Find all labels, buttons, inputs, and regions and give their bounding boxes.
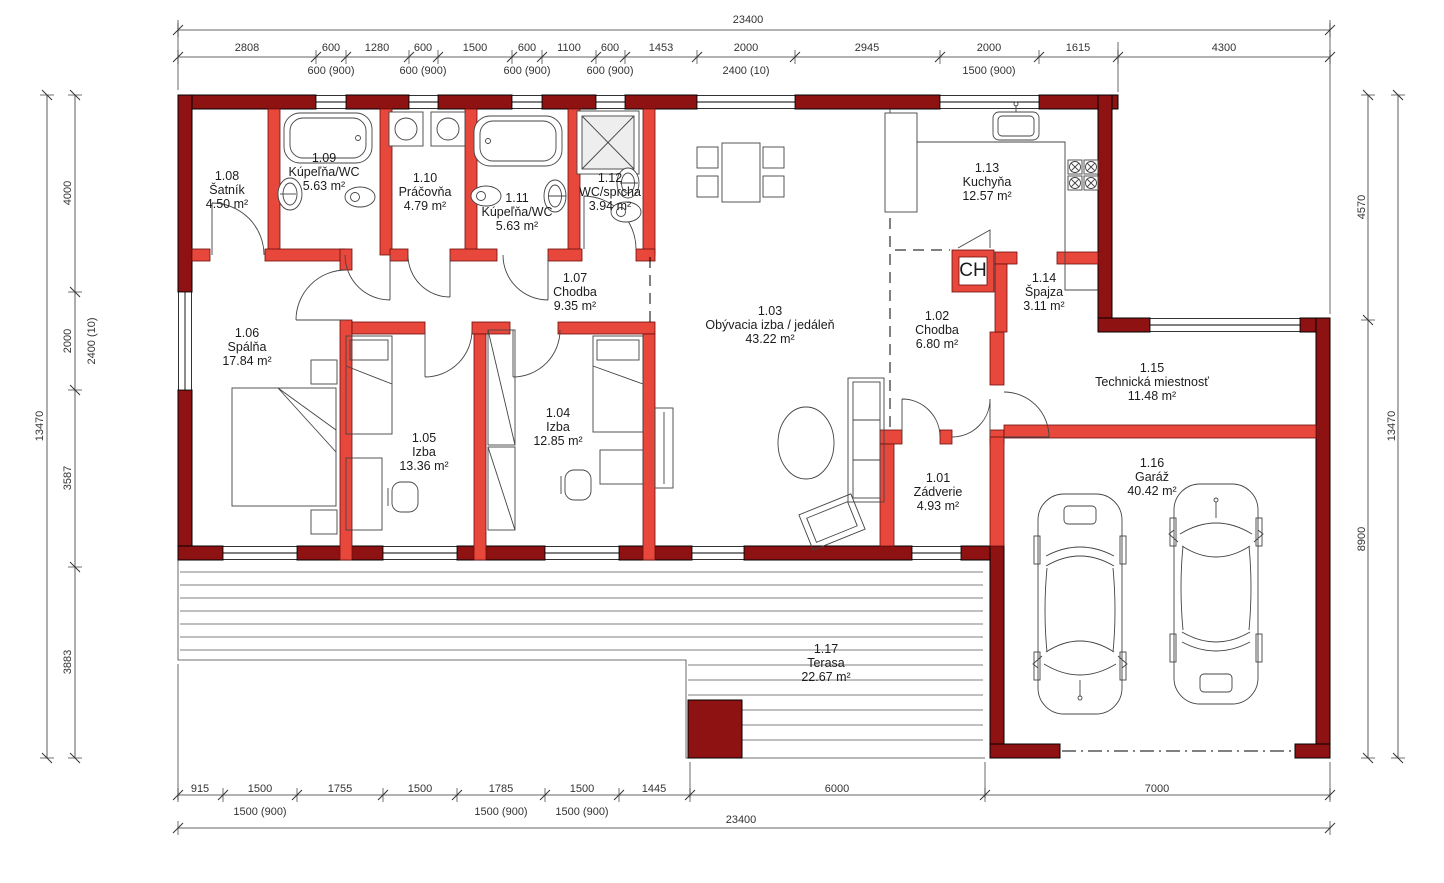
- dim-top-sub: 600 (900): [503, 65, 550, 77]
- room-label-1-08: 1.08Šatník4.50 m²: [206, 169, 248, 211]
- dim-bottom-seg: 6000: [825, 783, 849, 795]
- dim-bottom-seg: 7000: [1145, 783, 1169, 795]
- room-label-1-05: 1.05Izba13.36 m²: [399, 431, 448, 473]
- dim-right-total: 13470: [1386, 411, 1398, 442]
- dim-top-seg: 1280: [365, 42, 389, 54]
- dim-bottom-seg: 1500: [408, 783, 432, 795]
- dim-top-sub: 1500 (900): [962, 65, 1015, 77]
- dim-left-total: 13470: [34, 411, 46, 442]
- dim-top-seg: 2000: [734, 42, 758, 54]
- dim-bottom-seg: 1500: [248, 783, 272, 795]
- room-label-1-10: 1.10Práčovňa4.79 m²: [399, 171, 452, 213]
- terrace-step-block: [688, 700, 742, 758]
- room-label-1-15: 1.15Technická miestnosť11.48 m²: [1095, 361, 1209, 403]
- dim-left-seg: 3587: [62, 466, 74, 490]
- dim-left-extra: 2400 (10): [86, 317, 98, 364]
- single-bed-icon: [346, 336, 392, 434]
- dim-top-seg: 2000: [977, 42, 1001, 54]
- double-bed-icon: [232, 360, 337, 534]
- dim-top-seg: 600: [601, 42, 619, 54]
- dim-top-seg: 600: [518, 42, 536, 54]
- dim-bottom-sub: 1500 (900): [233, 806, 286, 818]
- floorplan-drawing: [0, 0, 1444, 883]
- dim-top-total: 23400: [733, 14, 764, 26]
- dim-top-seg: 600: [322, 42, 340, 54]
- room-label-1-07: 1.07Chodba9.35 m²: [553, 271, 597, 313]
- dim-bottom-seg: 1445: [642, 783, 666, 795]
- dim-right-seg: 8900: [1356, 527, 1368, 551]
- room-label-1-06: 1.06Spálňa17.84 m²: [222, 326, 271, 368]
- chair: [763, 176, 784, 197]
- dim-top-seg: 600: [414, 42, 432, 54]
- room-label-1-13: 1.13Kuchyňa12.57 m²: [962, 161, 1011, 203]
- room-label-1-12: 1.12WC/sprcha3.94 m²: [579, 171, 641, 213]
- dim-top-seg: 2945: [855, 42, 879, 54]
- dim-bottom-seg: 915: [191, 783, 209, 795]
- rug-oval: [778, 407, 834, 479]
- dim-top-seg: 1100: [557, 42, 581, 54]
- washer-icon: [389, 112, 423, 146]
- room-label-1-17: 1.17Terasa22.67 m²: [801, 642, 850, 684]
- washer-icon: [431, 112, 465, 146]
- garage-cars: [1033, 484, 1263, 714]
- dim-left-seg: 4000: [62, 181, 74, 205]
- dim-bottom-seg: 1785: [489, 783, 513, 795]
- dim-top-seg: 4300: [1212, 42, 1236, 54]
- dim-top-sub: 600 (900): [399, 65, 446, 77]
- chair: [697, 176, 718, 197]
- stove-icon: [1068, 160, 1098, 190]
- desk-chair-icon: [561, 470, 591, 500]
- dim-top-sub: 600 (900): [586, 65, 633, 77]
- chimney-label: CH: [959, 260, 986, 282]
- dining-table: [722, 143, 760, 202]
- floorplan-page: 1.01Zádverie4.93 m² 1.02Chodba6.80 m² 1.…: [0, 0, 1444, 883]
- room-label-1-01: 1.01Zádverie4.93 m²: [914, 471, 963, 513]
- dim-left-seg: 2000: [62, 329, 74, 353]
- room-label-1-03: 1.03Obývacia izba / jedáleň43.22 m²: [705, 304, 834, 346]
- dim-bottom-seg: 1755: [328, 783, 352, 795]
- desk-chair-icon: [388, 482, 418, 512]
- dim-top-sub: 2400 (10): [722, 65, 769, 77]
- dim-top-seg: 1500: [463, 42, 487, 54]
- room-label-1-09: 1.09Kúpeľňa/WC5.63 m²: [288, 151, 359, 193]
- bathtub-icon: [474, 116, 562, 166]
- room-label-1-02: 1.02Chodba6.80 m²: [915, 309, 959, 351]
- room-label-1-04: 1.04Izba12.85 m²: [533, 406, 582, 448]
- dim-top-seg: 2808: [235, 42, 259, 54]
- dim-left-seg: 3883: [62, 650, 74, 674]
- dim-top-seg: 1453: [649, 42, 673, 54]
- dim-bottom-seg: 1500: [570, 783, 594, 795]
- single-bed-icon: [593, 336, 643, 432]
- dim-right-seg: 4570: [1356, 195, 1368, 219]
- sofa-icon: [848, 378, 884, 502]
- dim-bottom-total: 23400: [726, 814, 757, 826]
- terrace-deck: [178, 560, 985, 758]
- dim-top-sub: 600 (900): [307, 65, 354, 77]
- chair: [763, 147, 784, 168]
- room-label-1-11: 1.11Kúpeľňa/WC5.63 m²: [481, 191, 552, 233]
- dim-bottom-sub: 1500 (900): [555, 806, 608, 818]
- room-label-1-16: 1.16Garáž40.42 m²: [1127, 456, 1176, 498]
- dim-bottom-sub: 1500 (900): [474, 806, 527, 818]
- chair: [697, 147, 718, 168]
- dim-top-seg: 1615: [1066, 42, 1090, 54]
- kitchen-peninsula: [885, 113, 917, 212]
- room-label-1-14: 1.14Špajza3.11 m²: [1023, 271, 1064, 313]
- desk: [600, 450, 643, 484]
